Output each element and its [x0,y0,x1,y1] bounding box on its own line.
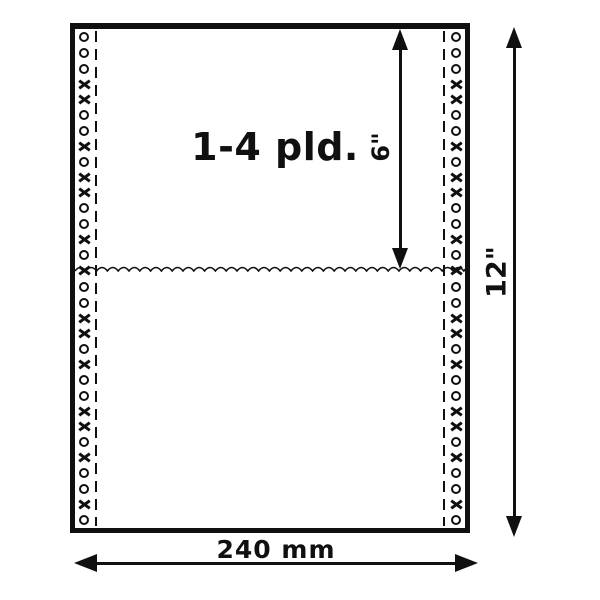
tractor-hole [451,203,461,213]
tractor-hole [79,437,89,447]
tractor-hole [451,391,461,401]
tractor-hole [79,250,89,260]
tractor-hole [451,468,461,478]
tractor-hole [451,188,462,197]
tractor-hole [79,375,89,385]
tractor-hole [79,515,89,525]
tractor-hole [79,48,89,58]
tractor-hole [79,80,90,89]
tractor-hole [451,282,461,292]
tractor-hole [79,329,90,338]
tractor-hole [79,142,90,151]
tractor-hole [79,298,89,308]
tractor-hole [451,126,461,136]
tractor-hole [451,515,461,525]
arrow-up-icon [392,29,408,50]
tractor-hole [451,375,461,385]
strip-perforation-left [95,31,97,526]
tractor-hole [451,64,461,74]
tractor-hole [79,219,89,229]
tractor-feed-strip-right [443,29,465,528]
arrow-left-icon [74,554,97,572]
tractor-hole [79,344,89,354]
tractor-hole [79,173,90,182]
tractor-hole [451,80,462,89]
tractor-hole [79,468,89,478]
width-dimension-arrow [74,554,478,572]
tractor-hole [451,95,462,104]
tractor-holes-left [77,32,91,525]
tractor-hole [451,500,462,509]
tractor-hole [451,110,461,120]
tractor-hole [451,484,461,494]
tractor-hole [79,95,90,104]
arrow-up-icon [506,27,522,48]
tractor-hole [451,407,462,416]
tractor-hole [79,235,90,244]
tractor-hole [79,314,90,323]
tractor-hole [79,360,90,369]
strip-perforation-right [443,31,445,526]
tractor-hole [79,203,89,213]
arrow-shaft [399,50,402,248]
tractor-hole [79,126,89,136]
tractor-hole [79,64,89,74]
total-height-label: 12" [482,246,513,298]
tractor-hole [451,437,461,447]
tractor-hole [79,157,89,167]
tractor-holes-right [449,32,463,525]
tractor-hole [451,314,462,323]
tractor-hole [451,250,461,260]
arrow-right-icon [455,554,478,572]
tractor-hole [451,298,461,308]
tractor-hole [451,173,462,182]
tractor-hole [79,407,90,416]
tractor-hole [79,391,89,401]
paper-sheet: 1-4 pld. 6" [70,23,470,533]
tractor-hole [451,360,462,369]
tractor-hole [79,453,90,462]
tractor-hole [79,282,89,292]
arrow-down-icon [392,248,408,269]
section-height-label: 6" [367,132,395,161]
tractor-hole [79,422,90,431]
tractor-hole [79,110,89,120]
tractor-hole [451,422,462,431]
tractor-hole [451,344,461,354]
tractor-hole [79,32,89,42]
tractor-hole [79,500,90,509]
tractor-hole [79,188,90,197]
tractor-hole [451,142,462,151]
arrow-shaft [97,562,455,565]
continuous-form-paper-diagram: 1-4 pld. 6" 12" 240 mm [0,0,600,600]
tractor-hole [451,329,462,338]
tractor-hole [451,219,461,229]
tractor-hole [451,453,462,462]
arrow-down-icon [506,516,522,537]
tractor-hole [451,48,461,58]
arrow-shaft [513,48,516,516]
tractor-hole [451,32,461,42]
tractor-hole [451,235,462,244]
tractor-hole [79,484,89,494]
tractor-hole [451,157,461,167]
tractor-feed-strip-left [75,29,97,528]
